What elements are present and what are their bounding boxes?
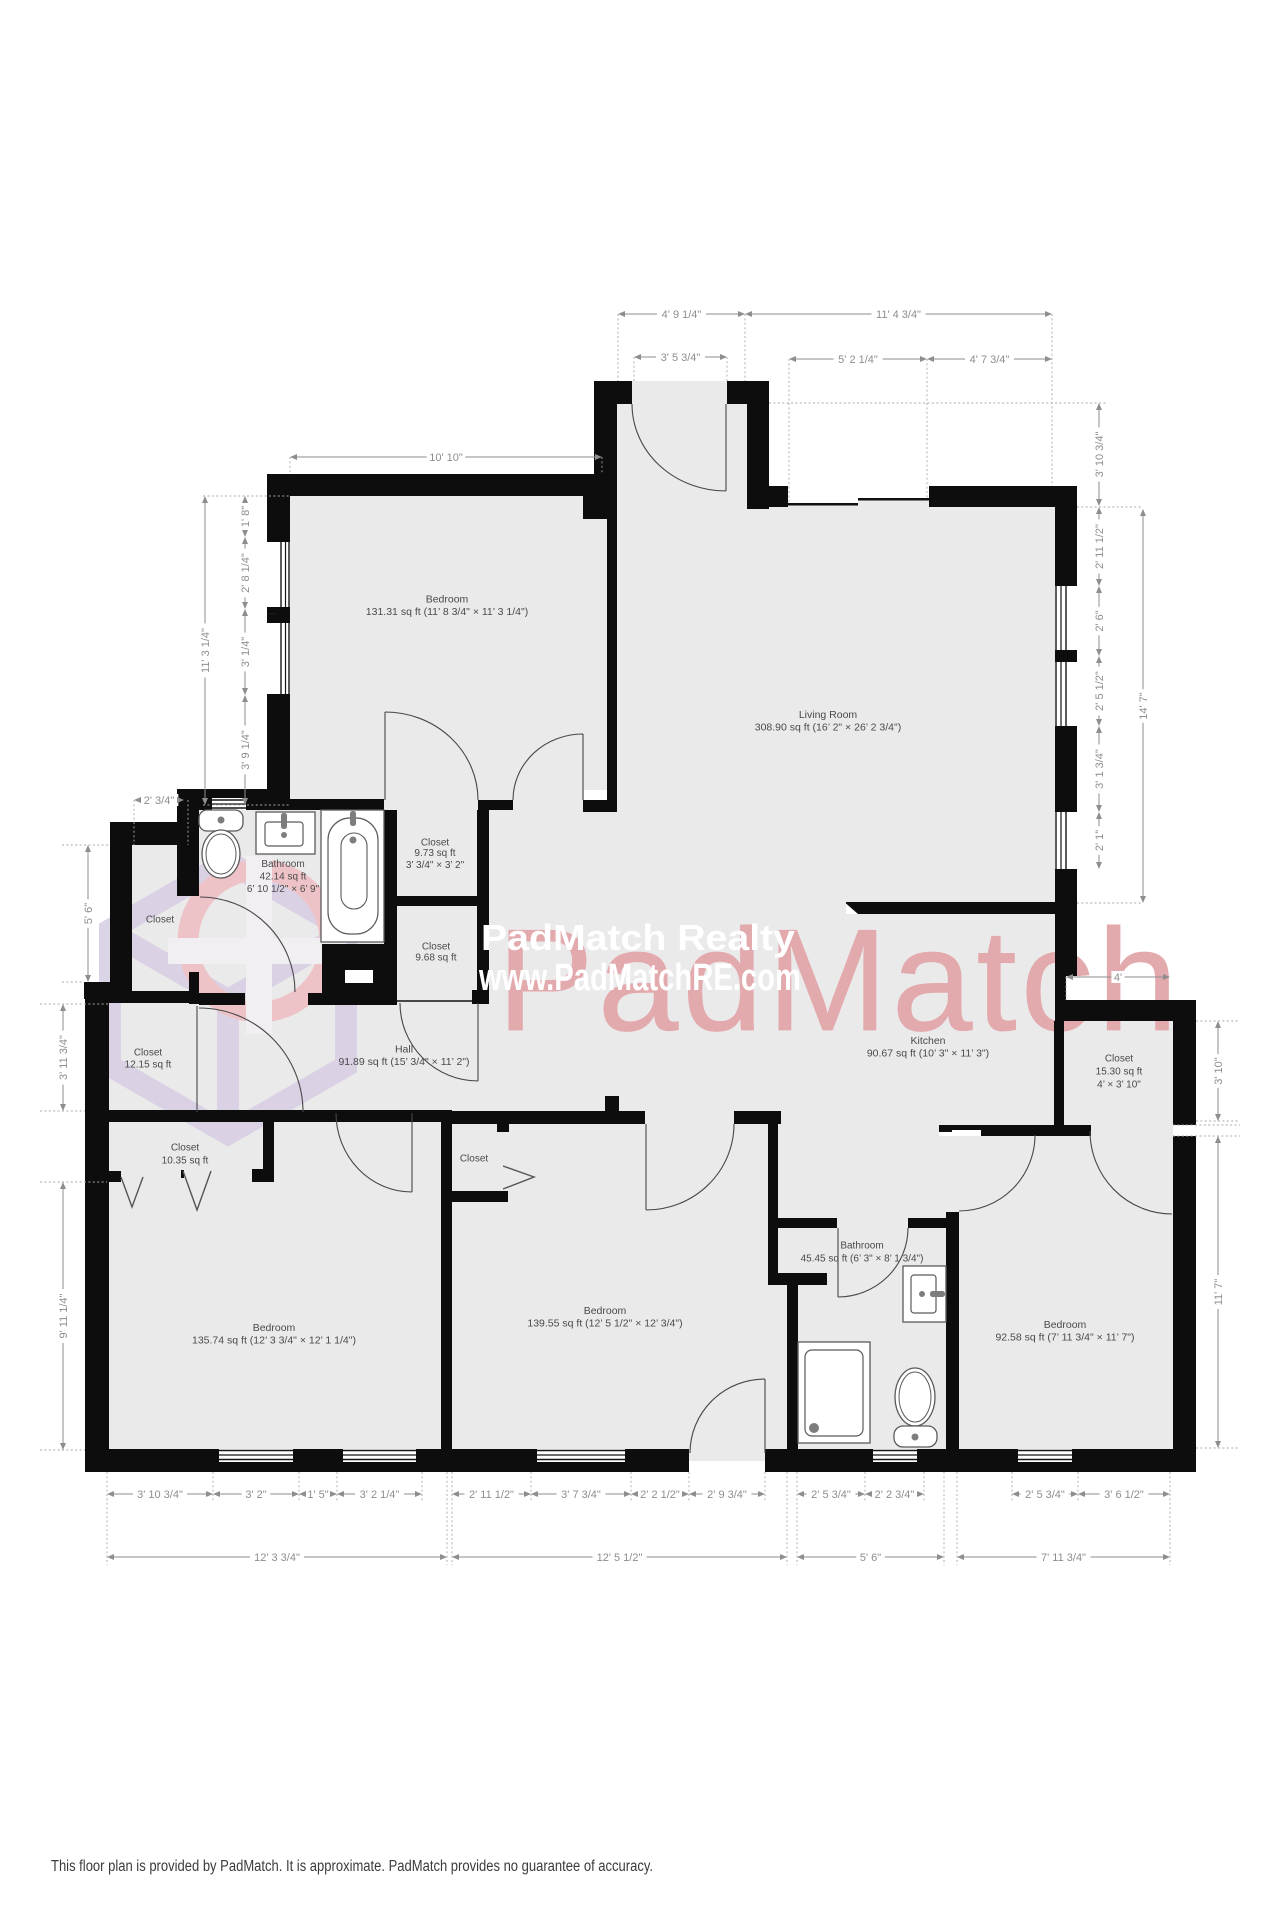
- svg-text:3' 10": 3' 10": [1213, 1057, 1225, 1085]
- svg-text:Bathroom: Bathroom: [261, 859, 304, 870]
- svg-text:3' 11 3/4": 3' 11 3/4": [58, 1035, 70, 1080]
- svg-text:3' 1 3/4": 3' 1 3/4": [1094, 749, 1106, 789]
- svg-text:12' 5 1/2": 12' 5 1/2": [597, 1552, 643, 1564]
- svg-text:6’ 10 1/2" × 6’ 9": 6’ 10 1/2" × 6’ 9": [247, 884, 320, 895]
- svg-text:45.45 sq ft (6’ 3" × 8’ 1 3/4": 45.45 sq ft (6’ 3" × 8’ 1 3/4"): [801, 1254, 924, 1265]
- svg-text:9.68 sq ft: 9.68 sq ft: [415, 953, 456, 964]
- svg-text:2' 5 3/4": 2' 5 3/4": [1025, 1489, 1065, 1501]
- svg-text:Bedroom: Bedroom: [1044, 1319, 1087, 1331]
- svg-text:Closet: Closet: [134, 1048, 163, 1059]
- svg-text:Closet: Closet: [171, 1143, 200, 1154]
- svg-text:11' 3 1/4": 11' 3 1/4": [200, 628, 212, 673]
- svg-text:9' 11 1/4": 9' 11 1/4": [58, 1293, 70, 1338]
- svg-text:3' 1/4": 3' 1/4": [240, 637, 252, 668]
- svg-text:Bathroom: Bathroom: [840, 1241, 883, 1252]
- svg-text:Bedroom: Bedroom: [584, 1305, 627, 1317]
- svg-text:3' 5 3/4": 3' 5 3/4": [661, 352, 701, 364]
- svg-text:Closet: Closet: [1105, 1054, 1134, 1065]
- svg-text:3' 2 1/4": 3' 2 1/4": [360, 1489, 400, 1501]
- svg-text:308.90 sq ft (16’ 2" × 26’ 2 3: 308.90 sq ft (16’ 2" × 26’ 2 3/4"): [755, 722, 901, 734]
- svg-text:14' 7": 14' 7": [1138, 692, 1150, 720]
- svg-text:3' 2": 3' 2": [245, 1489, 266, 1501]
- svg-text:131.31 sq ft (11’ 8 3/4" × 11’: 131.31 sq ft (11’ 8 3/4" × 11’ 3 1/4"): [366, 606, 528, 618]
- svg-text:5' 2 1/4": 5' 2 1/4": [838, 354, 878, 366]
- svg-text:Closet: Closet: [460, 1154, 489, 1165]
- svg-text:10' 10": 10' 10": [429, 452, 463, 464]
- svg-text:2' 1": 2' 1": [1094, 830, 1106, 851]
- svg-text:1' 5": 1' 5": [307, 1489, 328, 1501]
- svg-text:Closet: Closet: [146, 915, 175, 926]
- svg-text:2' 11 1/2": 2' 11 1/2": [1094, 524, 1106, 569]
- svg-text:Closet: Closet: [422, 942, 451, 953]
- svg-text:4': 4': [1114, 972, 1122, 984]
- svg-text:Hall: Hall: [395, 1044, 413, 1056]
- svg-text:3' 7 3/4": 3' 7 3/4": [561, 1489, 601, 1501]
- svg-text:12.15 sq ft: 12.15 sq ft: [125, 1060, 172, 1071]
- svg-text:2' 5 1/2": 2' 5 1/2": [1094, 671, 1106, 711]
- svg-text:2' 6": 2' 6": [1094, 610, 1106, 631]
- svg-text:www.PadMatchRE.com: www.PadMatchRE.com: [478, 957, 801, 999]
- svg-text:2' 11 1/2": 2' 11 1/2": [469, 1489, 514, 1501]
- svg-text:11' 4 3/4": 11' 4 3/4": [876, 309, 921, 321]
- svg-text:90.67 sq ft (10’ 3" × 11’ 3"): 90.67 sq ft (10’ 3" × 11’ 3"): [867, 1048, 989, 1060]
- svg-text:135.74 sq ft (12’ 3 3/4" × 12’: 135.74 sq ft (12’ 3 3/4" × 12’ 1 1/4"): [192, 1335, 356, 1347]
- svg-text:1' 8": 1' 8": [240, 506, 252, 527]
- svg-text:11' 7": 11' 7": [1213, 1279, 1225, 1306]
- svg-text:42.14 sq ft: 42.14 sq ft: [260, 872, 307, 883]
- svg-text:91.89 sq ft (15’ 3/4" × 11’ 2": 91.89 sq ft (15’ 3/4" × 11’ 2"): [338, 1056, 469, 1068]
- svg-text:12' 3 3/4": 12' 3 3/4": [254, 1552, 300, 1564]
- svg-text:5' 6": 5' 6": [860, 1552, 881, 1564]
- svg-text:2' 5 3/4": 2' 5 3/4": [811, 1489, 851, 1501]
- svg-text:3' 10 3/4": 3' 10 3/4": [137, 1489, 183, 1501]
- svg-text:2' 8 1/4": 2' 8 1/4": [240, 553, 252, 593]
- svg-text:PadMatch Realty: PadMatch Realty: [481, 917, 795, 958]
- svg-text:Kitchen: Kitchen: [910, 1035, 945, 1047]
- svg-text:2' 9 3/4": 2' 9 3/4": [707, 1489, 747, 1501]
- svg-text:92.58 sq ft (7’ 11 3/4" × 11’: 92.58 sq ft (7’ 11 3/4" × 11’ 7"): [995, 1332, 1134, 1344]
- svg-text:Closet: Closet: [421, 838, 450, 849]
- svg-text:4' 9 1/4": 4' 9 1/4": [662, 309, 702, 321]
- svg-text:9.73 sq ft: 9.73 sq ft: [414, 848, 455, 859]
- svg-text:139.55 sq ft (12’ 5 1/2" × 12’: 139.55 sq ft (12’ 5 1/2" × 12’ 3/4"): [527, 1318, 682, 1330]
- svg-text:5' 6": 5' 6": [83, 903, 95, 924]
- svg-text:7' 11 3/4": 7' 11 3/4": [1041, 1552, 1086, 1564]
- svg-text:4’ × 3’ 10": 4’ × 3’ 10": [1097, 1080, 1141, 1091]
- svg-text:2' 2 3/4": 2' 2 3/4": [875, 1489, 915, 1501]
- svg-text:This floor plan is provided by: This floor plan is provided by PadMatch.…: [51, 1858, 653, 1875]
- svg-text:3' 9 1/4": 3' 9 1/4": [240, 730, 252, 770]
- svg-text:10.35 sq ft: 10.35 sq ft: [162, 1156, 209, 1167]
- svg-text:3' 10 3/4": 3' 10 3/4": [1094, 432, 1106, 478]
- svg-text:Living Room: Living Room: [799, 709, 858, 721]
- svg-text:3' 6 1/2": 3' 6 1/2": [1104, 1489, 1144, 1501]
- svg-text:2' 2 1/2": 2' 2 1/2": [640, 1489, 680, 1501]
- svg-text:2' 3/4": 2' 3/4": [144, 795, 175, 807]
- svg-text:4' 7 3/4": 4' 7 3/4": [970, 354, 1010, 366]
- svg-text:3’ 3/4" × 3’ 2": 3’ 3/4" × 3’ 2": [406, 860, 465, 871]
- svg-text:Bedroom: Bedroom: [426, 594, 469, 606]
- svg-text:Bedroom: Bedroom: [253, 1322, 296, 1334]
- svg-text:15.30 sq ft: 15.30 sq ft: [1096, 1067, 1143, 1078]
